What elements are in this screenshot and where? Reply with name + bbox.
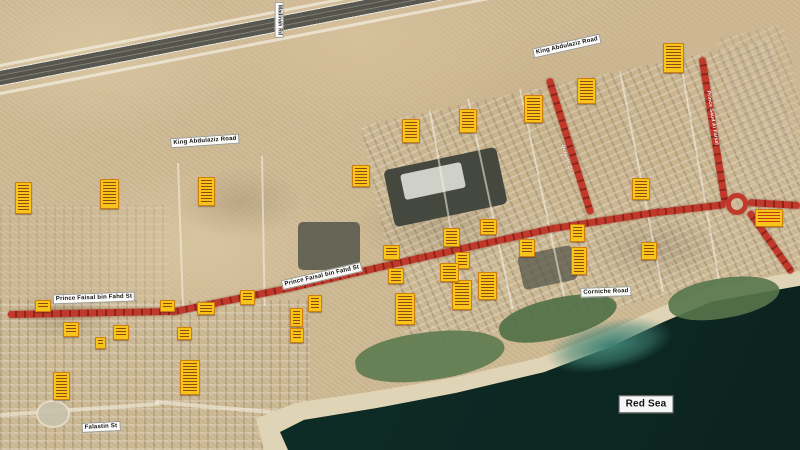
marker-text-lines bbox=[527, 98, 540, 120]
marker-text-lines bbox=[391, 271, 401, 281]
roundabout-park bbox=[36, 400, 70, 428]
annotation-marker[interactable] bbox=[519, 239, 535, 257]
marker-text-lines bbox=[455, 283, 469, 307]
annotation-marker[interactable] bbox=[478, 272, 497, 300]
annotation-marker[interactable] bbox=[402, 119, 420, 143]
marker-text-lines bbox=[243, 293, 252, 302]
annotation-marker[interactable] bbox=[755, 209, 783, 227]
annotation-marker[interactable] bbox=[197, 302, 215, 315]
annotation-marker[interactable] bbox=[524, 95, 543, 123]
annotation-marker[interactable] bbox=[383, 245, 400, 260]
marker-text-lines bbox=[481, 275, 494, 297]
road-name-label: Madinah Rd bbox=[275, 2, 284, 38]
annotation-marker[interactable] bbox=[459, 109, 477, 133]
marker-text-lines bbox=[355, 168, 367, 184]
road-name-label: Falastin St bbox=[81, 421, 120, 433]
marker-text-lines bbox=[666, 46, 681, 70]
sea-name-label: Red Sea bbox=[619, 395, 674, 413]
marker-text-lines bbox=[522, 242, 532, 254]
annotation-marker[interactable] bbox=[570, 224, 585, 242]
annotation-marker[interactable] bbox=[100, 179, 119, 209]
marker-text-lines bbox=[98, 340, 103, 346]
annotation-marker[interactable] bbox=[95, 337, 106, 349]
annotation-marker[interactable] bbox=[440, 263, 459, 282]
annotation-marker[interactable] bbox=[63, 322, 79, 337]
annotation-marker[interactable] bbox=[53, 372, 70, 400]
annotation-marker[interactable] bbox=[632, 178, 650, 200]
annotation-marker[interactable] bbox=[388, 268, 404, 284]
marker-text-lines bbox=[183, 363, 197, 392]
marker-text-lines bbox=[386, 248, 397, 257]
annotation-marker[interactable] bbox=[308, 295, 322, 312]
annotation-marker[interactable] bbox=[577, 78, 596, 104]
annotation-marker[interactable] bbox=[177, 327, 192, 340]
marker-text-lines bbox=[116, 328, 126, 337]
annotation-marker[interactable] bbox=[35, 300, 51, 312]
annotation-marker[interactable] bbox=[160, 300, 175, 312]
route-roundabout bbox=[726, 193, 748, 215]
annotation-marker[interactable] bbox=[15, 182, 32, 214]
annotation-marker[interactable] bbox=[480, 219, 497, 235]
marker-text-lines bbox=[201, 180, 212, 203]
annotation-marker[interactable] bbox=[240, 290, 255, 305]
marker-text-lines bbox=[446, 231, 457, 244]
marker-text-lines bbox=[462, 112, 474, 130]
marker-text-lines bbox=[580, 81, 593, 101]
satellite-map[interactable]: const data = JSON.parse(document.getElem… bbox=[0, 0, 800, 450]
marker-text-lines bbox=[758, 212, 780, 224]
marker-text-lines bbox=[38, 303, 48, 309]
annotation-marker[interactable] bbox=[290, 308, 303, 327]
annotation-marker[interactable] bbox=[395, 293, 415, 325]
marker-text-lines bbox=[405, 122, 417, 140]
marker-text-lines bbox=[483, 222, 494, 232]
marker-text-lines bbox=[56, 375, 67, 397]
marker-text-lines bbox=[293, 311, 300, 324]
annotation-marker[interactable] bbox=[641, 242, 657, 260]
annotation-marker[interactable] bbox=[352, 165, 370, 187]
marker-text-lines bbox=[311, 298, 319, 309]
dark-block-center bbox=[298, 222, 360, 270]
marker-text-lines bbox=[573, 227, 582, 239]
annotation-marker[interactable] bbox=[198, 177, 215, 206]
urban-area-west bbox=[0, 205, 170, 305]
marker-text-lines bbox=[200, 305, 212, 312]
annotation-marker[interactable] bbox=[290, 328, 304, 343]
road-name-label: Corniche Road bbox=[580, 286, 632, 298]
annotation-marker[interactable] bbox=[443, 228, 460, 247]
marker-text-lines bbox=[644, 245, 654, 257]
marker-text-lines bbox=[18, 185, 29, 211]
annotation-marker[interactable] bbox=[452, 280, 472, 310]
marker-text-lines bbox=[293, 331, 301, 340]
annotation-marker[interactable] bbox=[113, 325, 129, 340]
marker-text-lines bbox=[398, 296, 412, 322]
marker-text-lines bbox=[443, 266, 456, 279]
marker-text-lines bbox=[458, 255, 467, 266]
annotation-marker[interactable] bbox=[663, 43, 684, 73]
marker-text-lines bbox=[66, 325, 76, 334]
marker-text-lines bbox=[574, 250, 584, 272]
annotation-marker[interactable] bbox=[571, 247, 587, 275]
marker-text-lines bbox=[635, 181, 647, 197]
annotation-marker[interactable] bbox=[180, 360, 200, 395]
marker-text-lines bbox=[103, 182, 116, 206]
marker-text-lines bbox=[163, 303, 172, 309]
marker-text-lines bbox=[180, 330, 189, 337]
